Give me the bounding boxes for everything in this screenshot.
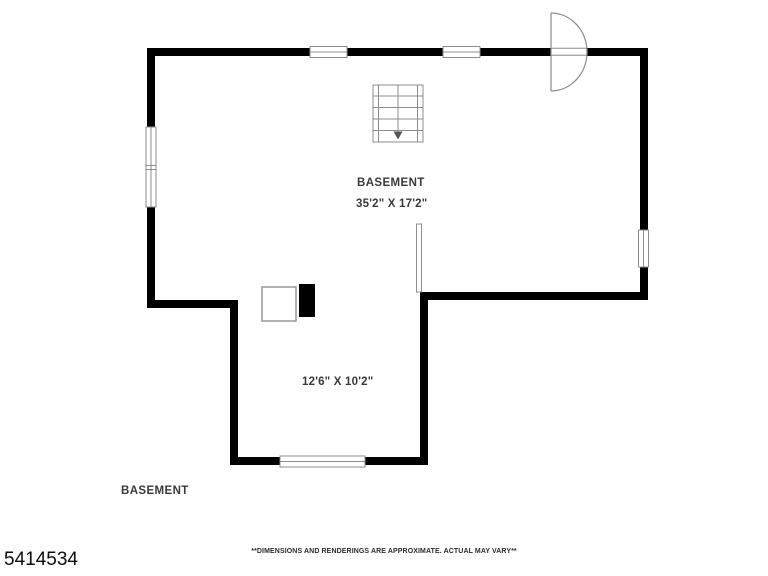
main-room-name-label: BASEMENT xyxy=(357,177,425,189)
wall-lower-right-vertical xyxy=(420,292,428,465)
floorplan-drawing xyxy=(0,0,768,576)
window-right-icon xyxy=(639,230,649,267)
wall-middle-horizontal xyxy=(420,292,648,300)
lower-room-dimensions-label: 12'6" X 10'2" xyxy=(302,376,373,388)
wall-bottom-left-horizontal xyxy=(147,300,238,308)
window-left-double-icon xyxy=(146,127,156,207)
window-top-right-icon xyxy=(443,47,480,58)
window-top-left-icon xyxy=(310,47,347,58)
chimney-box-icon xyxy=(299,284,315,317)
interior-partition-wall xyxy=(417,224,422,292)
wall-lower-left-vertical xyxy=(230,300,238,465)
floor-title-label: BASEMENT xyxy=(121,485,189,497)
listing-id: 5414534 xyxy=(4,549,78,571)
floorplan-page: BASEMENT 35'2" X 17'2" 12'6" X 10'2" BAS… xyxy=(0,0,768,576)
door-opening xyxy=(551,48,587,57)
disclaimer-text: **DIMENSIONS AND RENDERINGS ARE APPROXIM… xyxy=(0,548,768,555)
main-room-dimensions-label: 35'2" X 17'2" xyxy=(356,198,427,210)
window-bottom-icon xyxy=(280,456,365,467)
stairs-icon xyxy=(373,85,423,142)
utility-box-icon xyxy=(262,287,296,321)
